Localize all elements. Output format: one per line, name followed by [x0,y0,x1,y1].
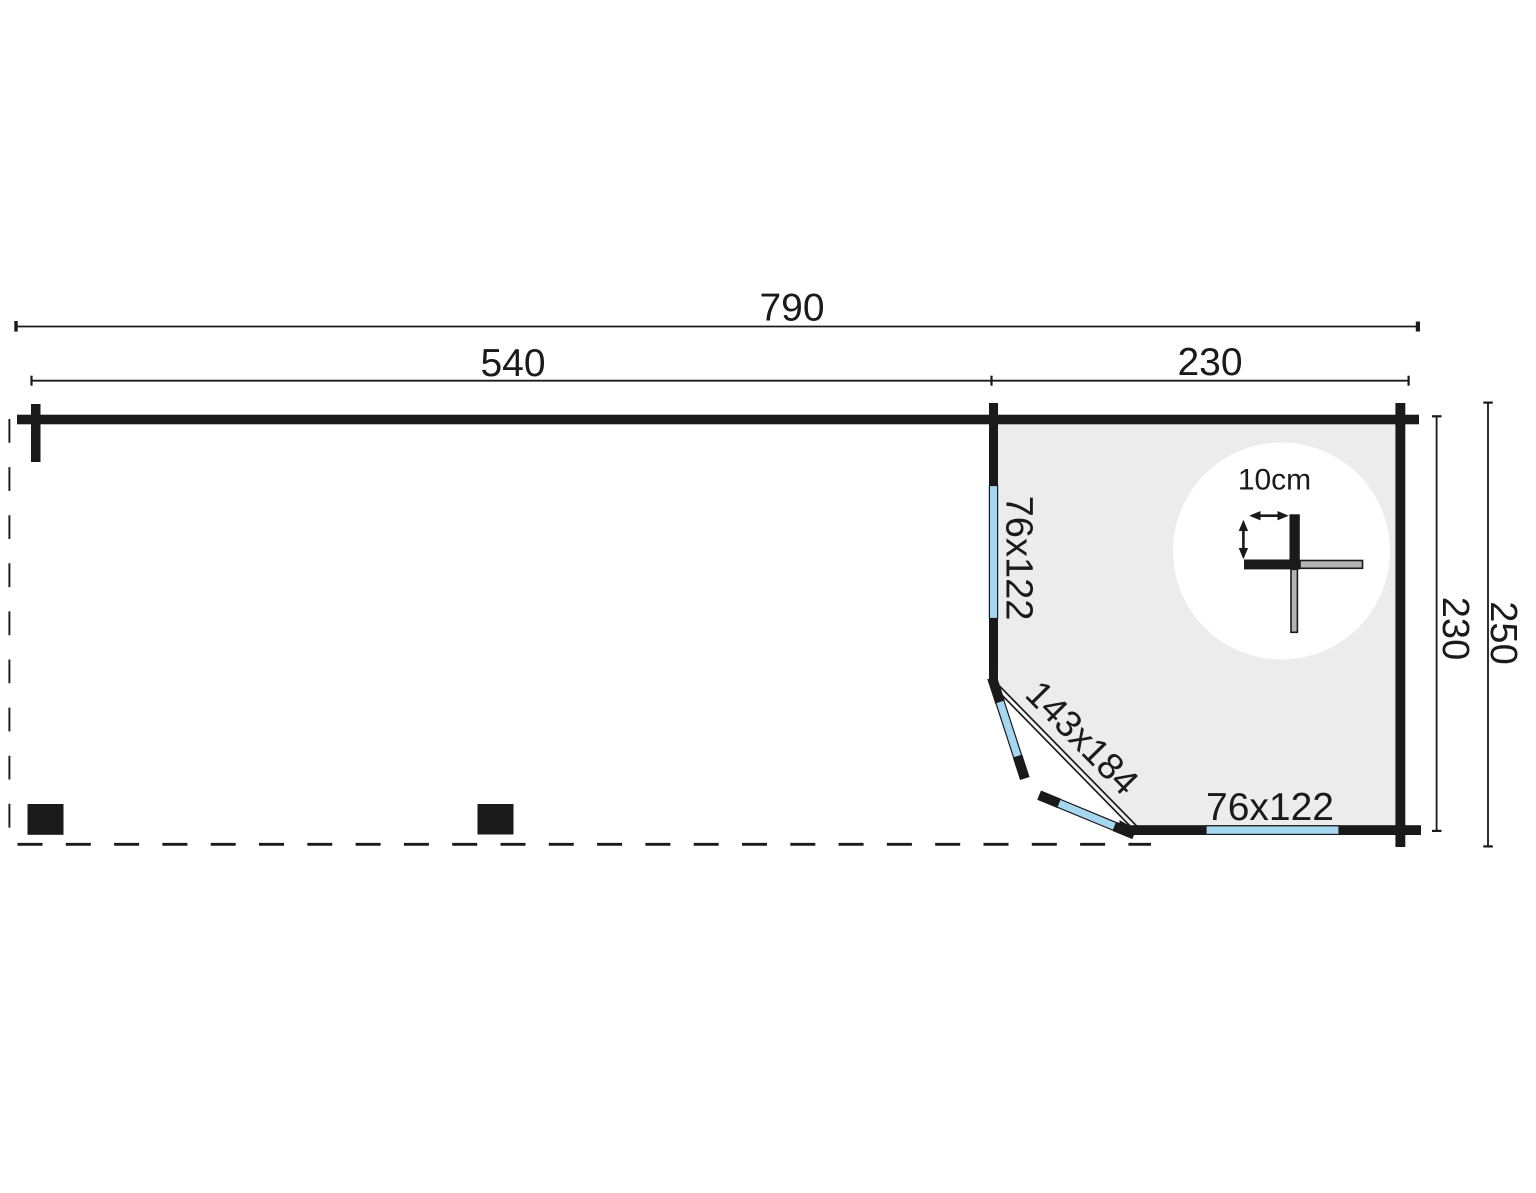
svg-text:10cm: 10cm [1238,464,1311,497]
svg-text:790: 790 [759,287,824,330]
svg-text:230: 230 [1177,341,1242,384]
svg-text:76x122: 76x122 [998,496,1040,621]
svg-text:76x122: 76x122 [1206,786,1334,829]
svg-text:250: 250 [1482,601,1524,664]
svg-text:230: 230 [1434,597,1476,660]
svg-text:540: 540 [480,342,545,385]
